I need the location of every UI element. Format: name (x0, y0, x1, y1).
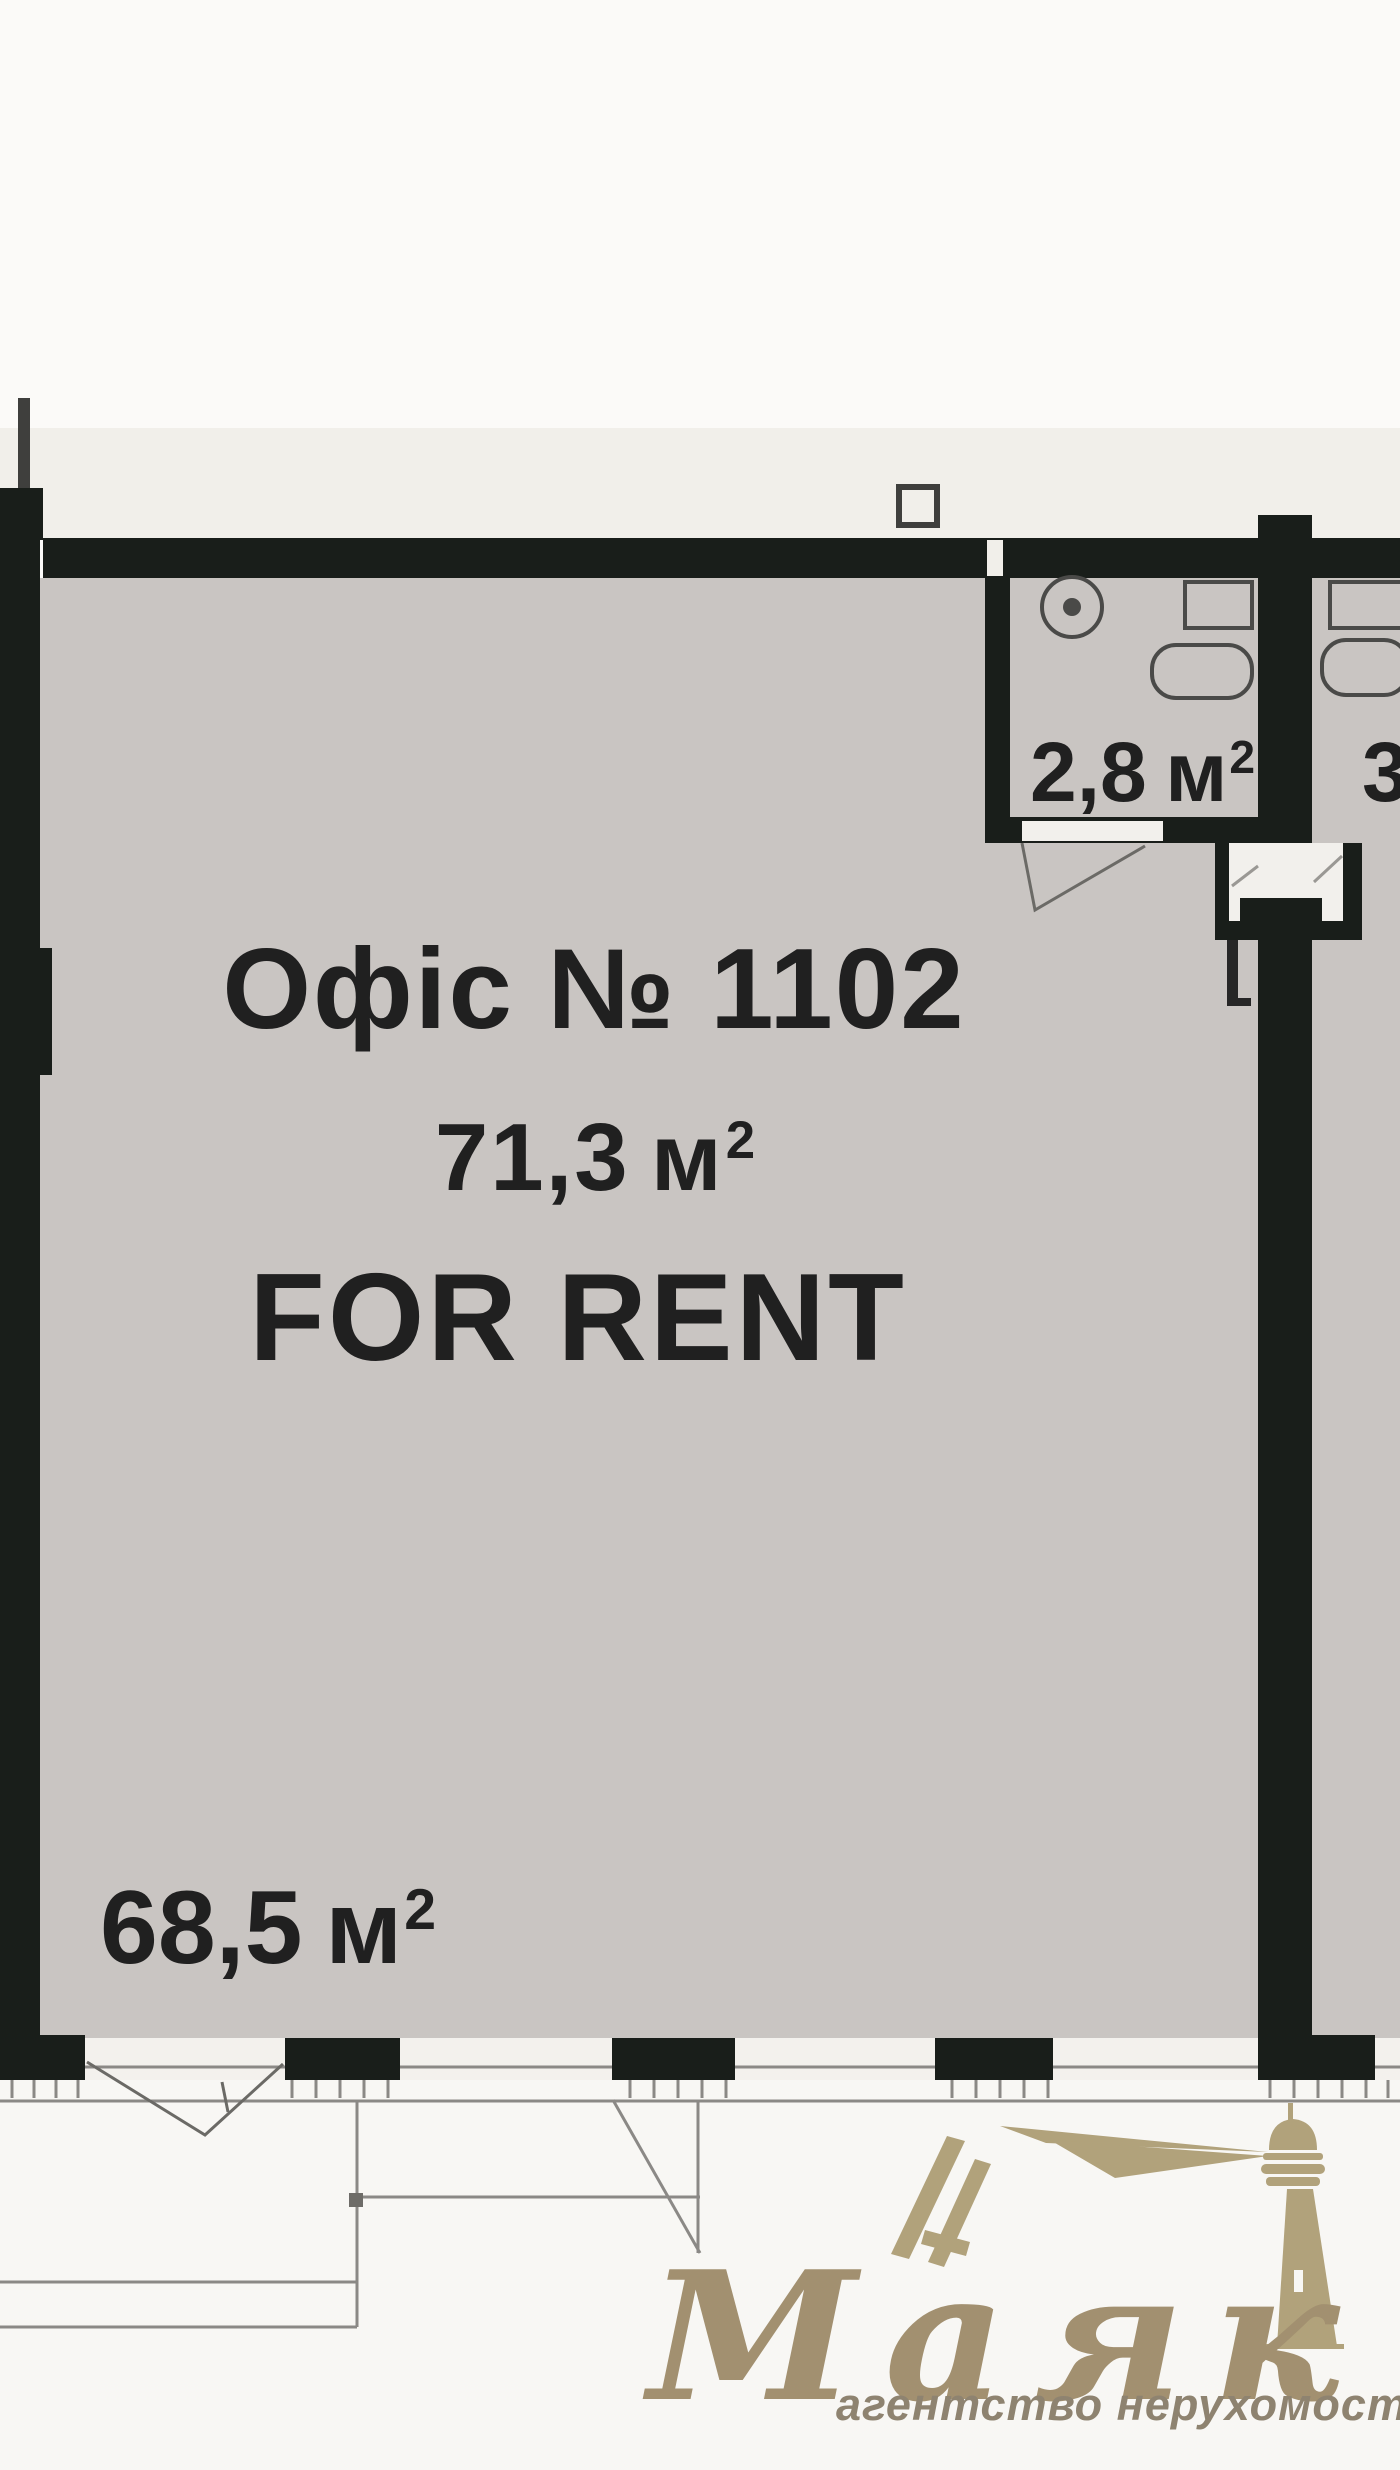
adjacent-area-value: 3 (1362, 725, 1400, 819)
floor-plan-page: Офіс № 1102 71,3м2 FOR RENT 2,8м2 3 68,5… (0, 0, 1400, 2470)
bottom-wall-segment (935, 2038, 1053, 2080)
lighthouse-gallery (1266, 2177, 1320, 2186)
bathroom-left-wall (985, 578, 1010, 818)
adjacent-area-label: 3 (1362, 730, 1400, 814)
main-room-area-value: 68,5 (100, 1870, 302, 1986)
office-area-value: 71,3 (435, 1104, 630, 1211)
bottom-left-corner-block (0, 2035, 85, 2080)
pencil-node-marker (349, 2193, 363, 2207)
column-top-stub (1258, 515, 1312, 540)
lighthouse-band (1263, 2153, 1323, 2160)
plan-reference-square-icon (899, 487, 937, 525)
lighthouse-gallery (1261, 2164, 1325, 2174)
main-room-area-label: 68,5м2 (100, 1876, 436, 1980)
wall-junction-notch (987, 540, 1003, 576)
top-wall (43, 538, 1400, 578)
for-rent-label: FOR RENT (249, 1256, 907, 1380)
bathroom-area-value: 2,8 (1030, 725, 1147, 819)
plan-paper-band (0, 428, 1400, 538)
area-exponent: 2 (404, 1878, 436, 1942)
area-unit: м (651, 1104, 724, 1211)
office-area-label: 71,3м2 (435, 1110, 757, 1206)
left-wall-upper-line (18, 398, 30, 490)
bathroom-door-leaf (1022, 821, 1163, 841)
left-wall (0, 538, 40, 2038)
bottom-wall-segment (285, 2038, 400, 2080)
bathroom-area-label: 2,8м2 (1030, 730, 1255, 814)
area-unit: м (325, 1870, 402, 1986)
ceiling-light-center-icon (1063, 598, 1081, 616)
area-unit: м (1165, 725, 1227, 819)
dividing-column-wall (1258, 538, 1312, 2038)
area-exponent: 2 (726, 1111, 757, 1170)
column-foot-block (1258, 2035, 1375, 2080)
top-left-corner-block (0, 488, 43, 540)
bottom-wall-segment (612, 2038, 735, 2080)
agency-tagline: агентство нерухомості (836, 2382, 1400, 2427)
left-wall-pilaster (0, 948, 52, 1075)
office-title-label: Офіс № 1102 (222, 933, 965, 1047)
floor-plan-drawing (0, 0, 1400, 2470)
area-exponent: 2 (1229, 731, 1255, 783)
